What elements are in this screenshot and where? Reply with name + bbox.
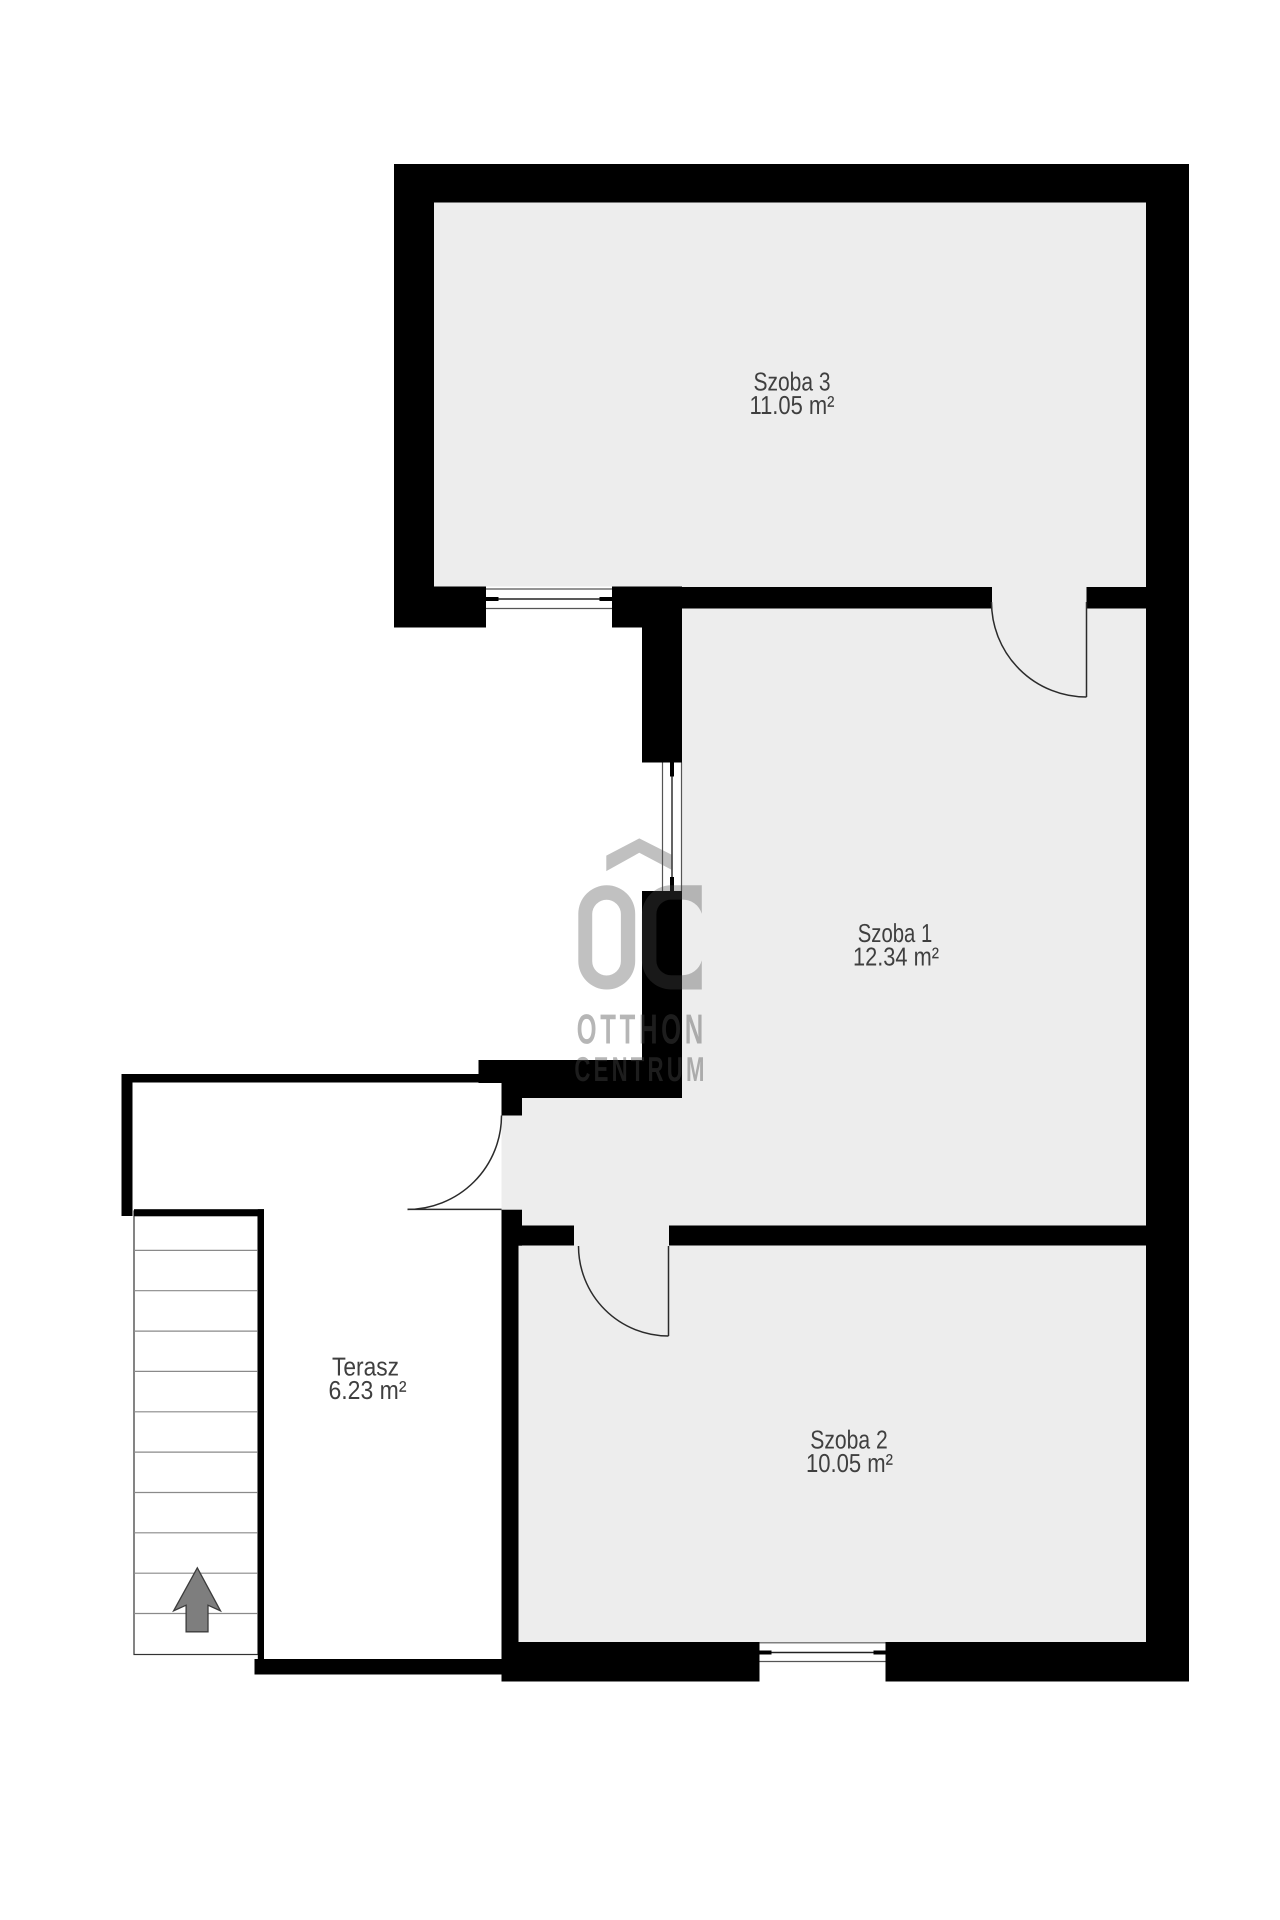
svg-text:11.05 m²: 11.05 m² (750, 390, 835, 420)
svg-text:OTTHON: OTTHON (577, 1006, 707, 1053)
svg-text:12.34 m²: 12.34 m² (853, 942, 939, 972)
svg-text:10.05 m²: 10.05 m² (806, 1448, 893, 1478)
svg-text:6.23 m²: 6.23 m² (328, 1375, 406, 1405)
svg-text:CENTRUM: CENTRUM (574, 1051, 707, 1089)
